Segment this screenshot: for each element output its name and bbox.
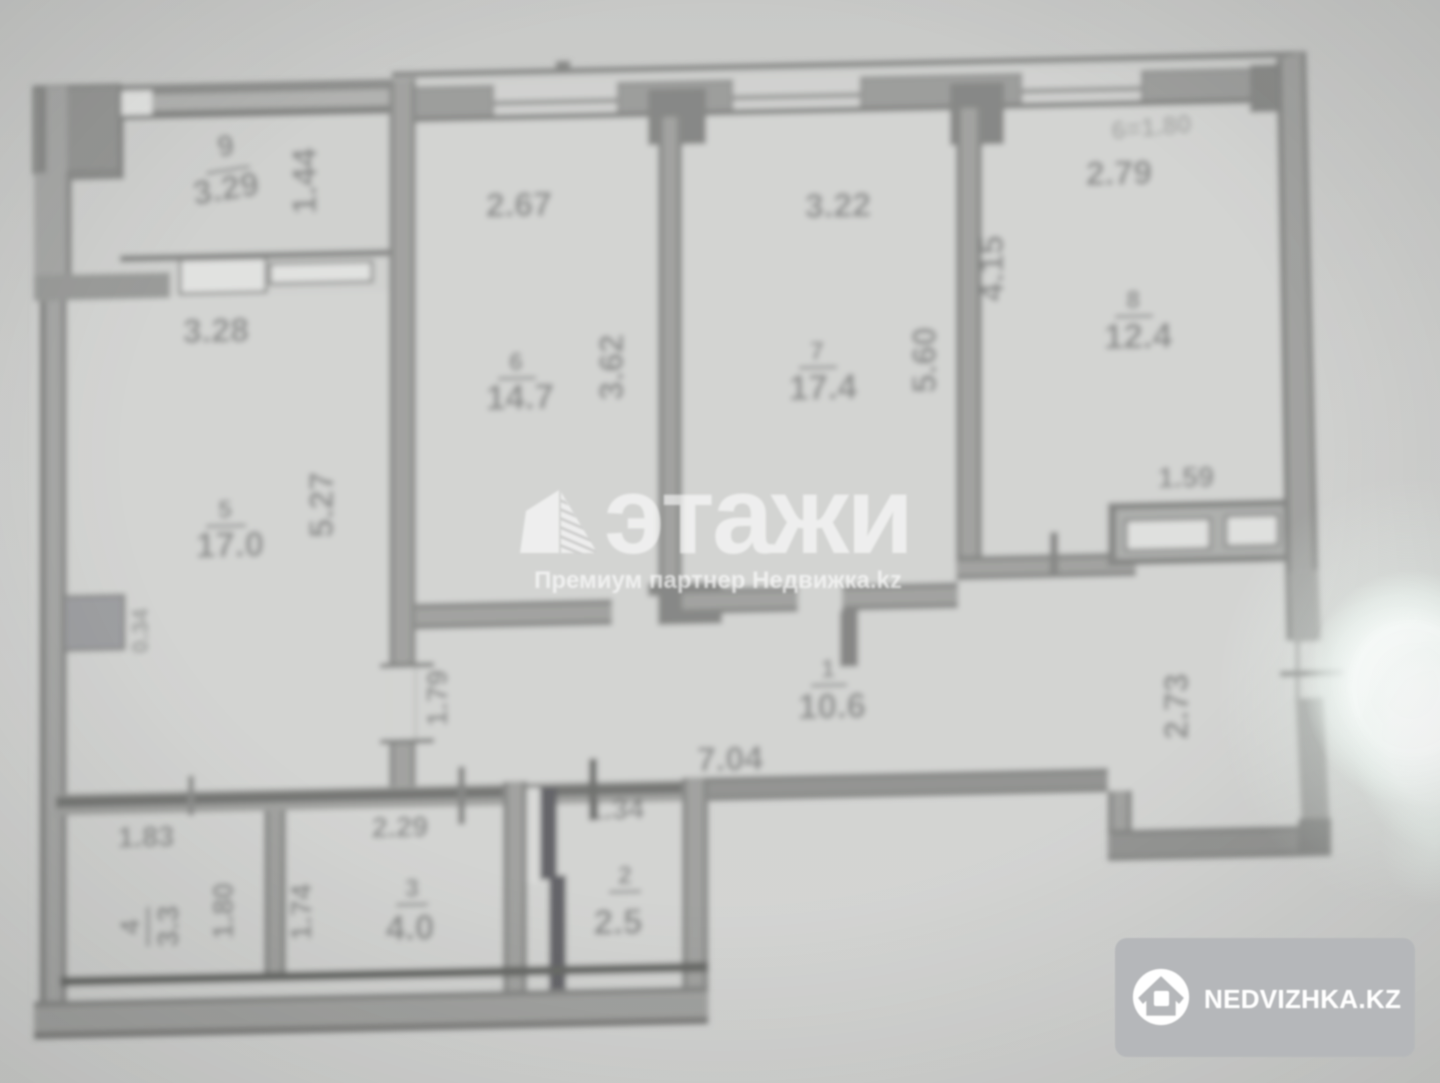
- svg-text:NEDVIZHKA.KZ: NEDVIZHKA.KZ: [1204, 984, 1401, 1014]
